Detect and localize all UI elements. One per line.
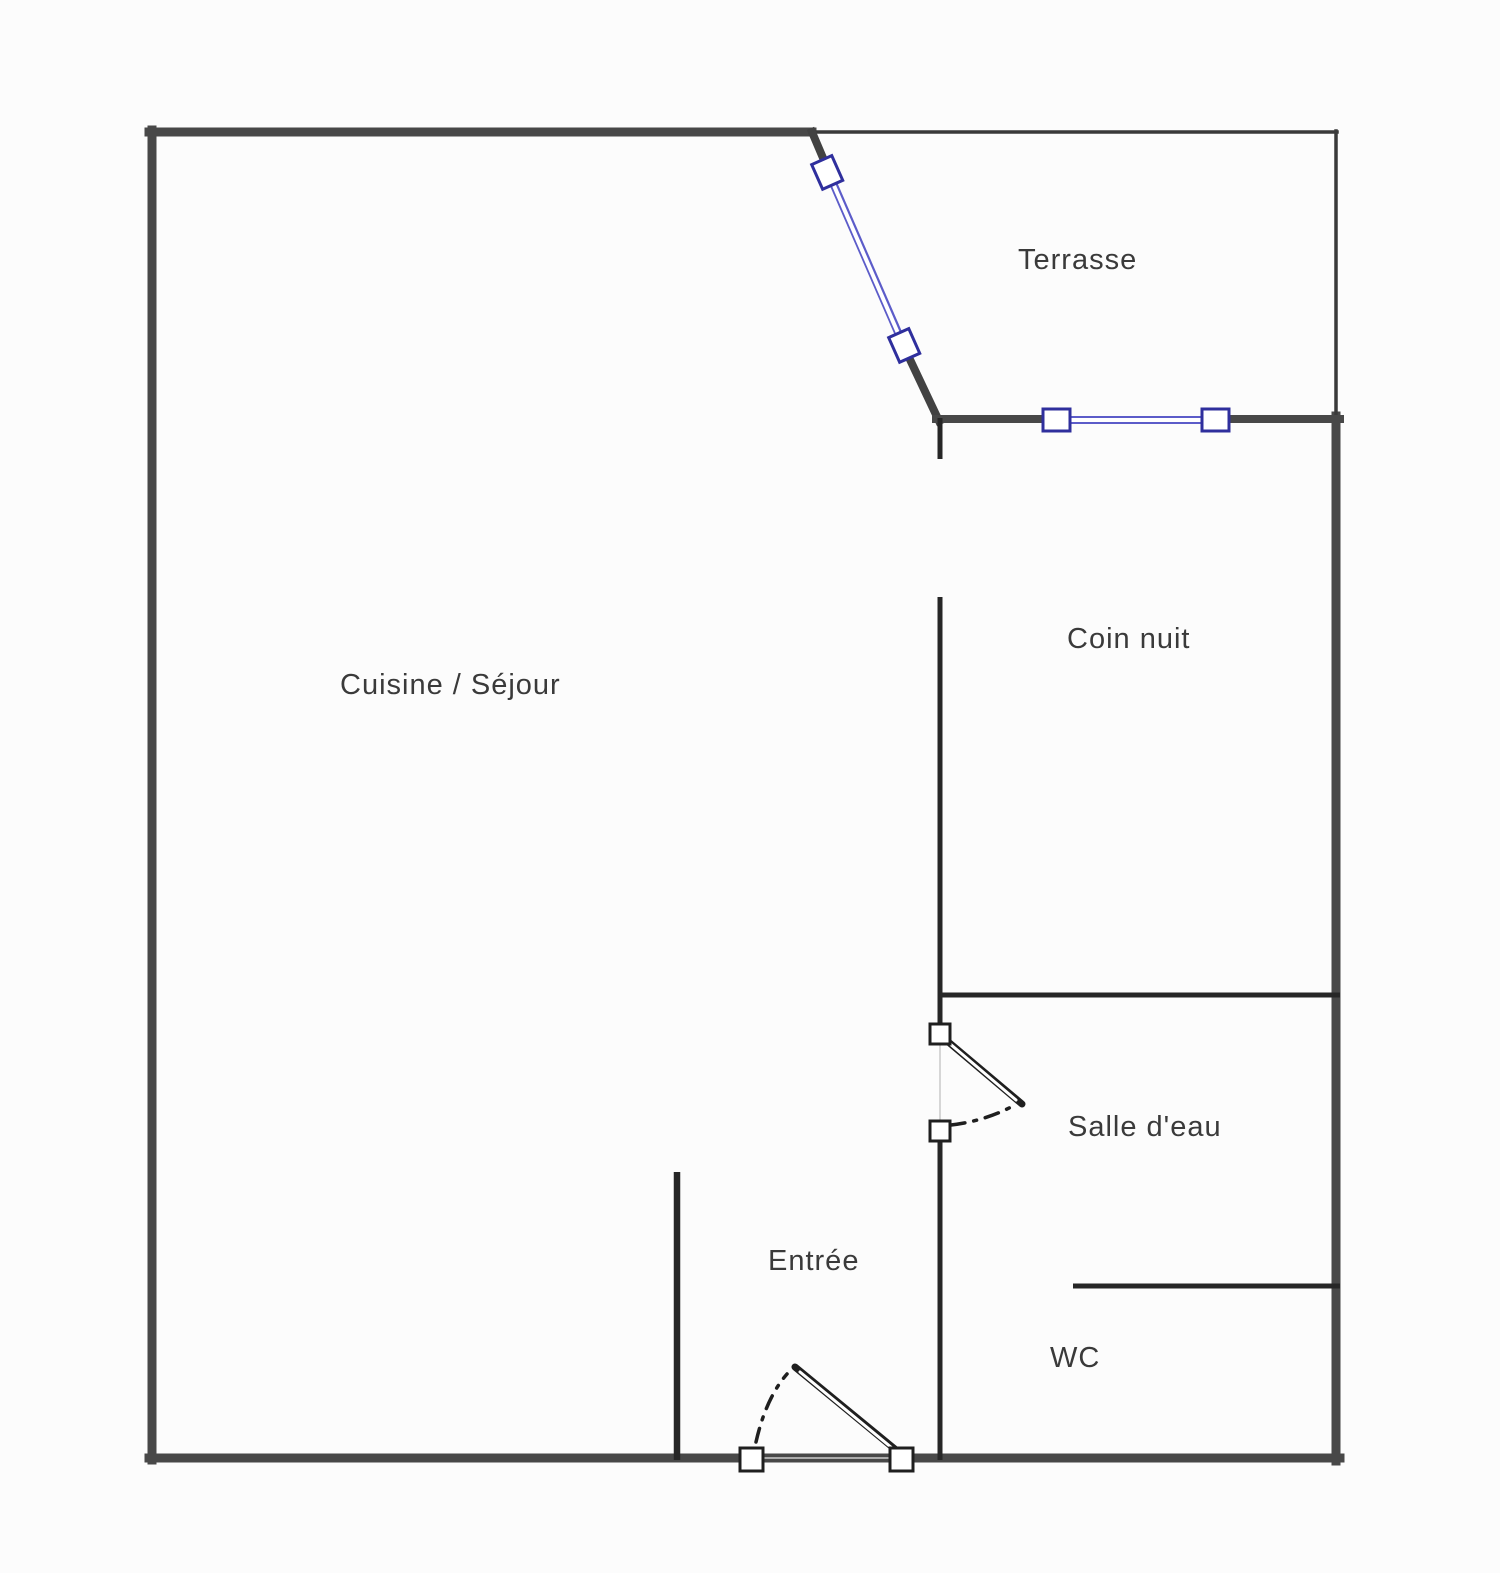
bathroom-door-hinge-post bbox=[930, 1024, 950, 1044]
room-label-coin-nuit: Coin nuit bbox=[1067, 623, 1190, 655]
room-label-wc: WC bbox=[1050, 1342, 1100, 1374]
entrance-door-latch-post bbox=[740, 1448, 763, 1471]
entrance-door-hinge-post bbox=[890, 1448, 913, 1471]
horizontal-window-frame-left bbox=[1043, 409, 1070, 431]
floorplan-background bbox=[0, 0, 1500, 1573]
room-label-cuisine-sejour: Cuisine / Séjour bbox=[340, 669, 561, 701]
room-label-terrasse: Terrasse bbox=[1018, 244, 1137, 276]
room-label-salle-eau: Salle d'eau bbox=[1068, 1111, 1222, 1143]
bathroom-door-latch-post bbox=[930, 1121, 950, 1141]
room-label-entree: Entrée bbox=[768, 1245, 859, 1277]
floorplan-canvas: Terrasse Cuisine / Séjour Coin nuit Sall… bbox=[0, 0, 1500, 1573]
horizontal-window-frame-right bbox=[1202, 409, 1229, 431]
